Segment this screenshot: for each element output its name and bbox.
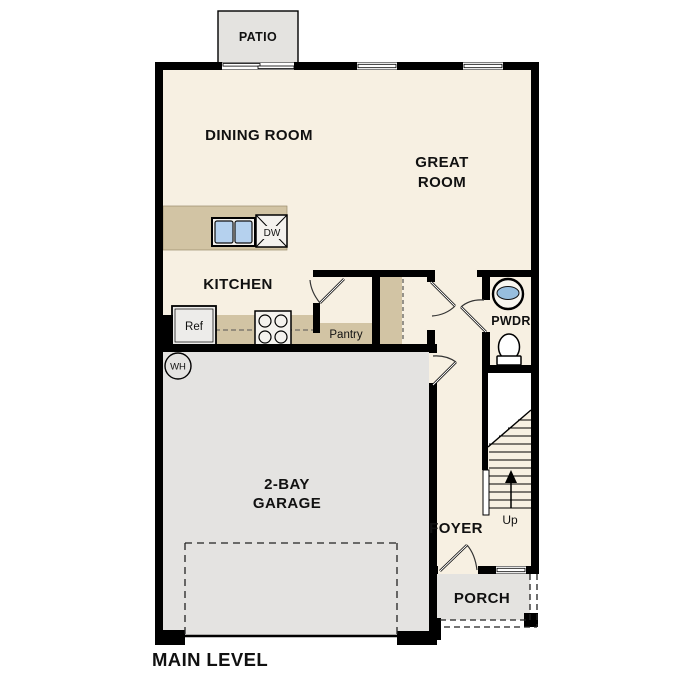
up-label: Up (502, 513, 518, 527)
stair-handrail (483, 470, 489, 515)
wall-stair-left (482, 373, 488, 470)
foyer-label: FOYER (429, 520, 483, 537)
water-heater-label: WH (170, 362, 186, 373)
dining-room-label: DINING ROOM (205, 127, 313, 144)
wall-pwdr-left-upper (482, 270, 490, 300)
wall-pwdr-left-lower (482, 332, 490, 365)
wall-ref-stub (163, 315, 173, 352)
pantry-label: Pantry (329, 329, 362, 341)
sink-basin-left (215, 221, 233, 243)
stove (255, 311, 291, 345)
dishwasher: DW (256, 215, 287, 247)
wall-garage-corner-right (397, 631, 437, 645)
wall-porch-left (429, 574, 437, 622)
refrigerator: Ref (172, 306, 216, 345)
coat-closet-shelf (380, 277, 402, 344)
burner (259, 315, 271, 327)
main-level-title: MAIN LEVEL (152, 649, 268, 670)
wall-closet-right-upper (427, 270, 435, 282)
window-top-2 (463, 63, 503, 70)
window-foyer (496, 567, 526, 574)
wall-pantry-left (313, 303, 320, 333)
sliding-door (222, 63, 294, 70)
garage-entry-gap (429, 353, 437, 383)
floors (163, 70, 531, 637)
wall-garage-corner-left (155, 630, 185, 645)
wall-kitchen-garage (155, 344, 437, 352)
dishwasher-label: DW (264, 228, 281, 239)
porch-post (524, 613, 538, 627)
burner (275, 331, 287, 343)
toilet (497, 334, 521, 365)
wall-garage-right-lower (429, 383, 437, 573)
patio-room: PATIO (218, 11, 298, 64)
kitchen-sink (212, 218, 255, 246)
wall-pantry-closet (372, 270, 380, 352)
wall-pwdr-bottom (482, 365, 539, 373)
wall-closet-right-lower (427, 330, 435, 352)
pwdr-label: PWDR (491, 314, 530, 328)
kitchen-label: KITCHEN (203, 276, 272, 293)
great-room-label-line2: ROOM (418, 174, 466, 191)
floor-plan: PATIO DW (0, 0, 687, 687)
wall-right (531, 62, 539, 573)
water-heater: WH (165, 353, 191, 379)
window-top-1 (357, 63, 397, 70)
burner (259, 331, 271, 343)
garage-label-line1: 2-BAY (264, 476, 310, 493)
sink-basin-right (235, 221, 252, 243)
garage-label-line2: GARAGE (253, 495, 321, 512)
porch-label: PORCH (454, 590, 510, 607)
wall-left (155, 62, 163, 645)
refrigerator-label: Ref (185, 321, 204, 333)
great-room-label-line1: GREAT (415, 154, 468, 171)
floor-plan-canvas: PATIO DW (0, 0, 687, 687)
pwdr-sink (493, 279, 523, 309)
burner (275, 315, 287, 327)
patio-label: PATIO (239, 30, 277, 44)
